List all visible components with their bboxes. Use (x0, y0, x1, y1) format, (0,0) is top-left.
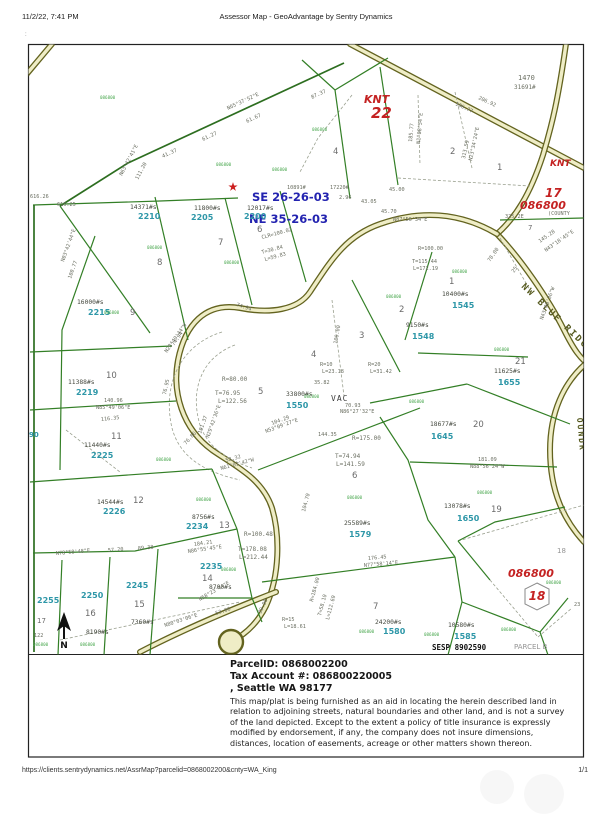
map-label: N03°42'44"E (60, 228, 77, 262)
map-label: N86°27'32"E (340, 409, 374, 415)
map-label: 086800 (508, 567, 554, 580)
map-label: 2210 (138, 212, 161, 221)
map-label: 43.05 (361, 199, 377, 205)
map-label: 2205 (191, 213, 214, 222)
map-label: 086800 (477, 490, 493, 495)
map-label: 25589#s (344, 520, 371, 527)
map-label: R=20 (368, 362, 381, 368)
map-label: 14 (202, 574, 213, 584)
street-label-partial: OUNDR (575, 417, 587, 452)
map-label: T=115.44 (412, 259, 437, 265)
map-label: 3 (359, 331, 364, 341)
map-label: 2200 (244, 212, 267, 221)
map-label: VAC (331, 394, 348, 403)
map-label: 086800 (359, 629, 375, 634)
map-label: 1650 (457, 514, 480, 523)
map-label: 122 (34, 633, 43, 639)
parcel-info-panel: ParcelID: 0868002200 Tax Account #: 0868… (230, 659, 572, 749)
map-label: 14544#s (97, 499, 124, 506)
map-label: 086800 (272, 167, 288, 172)
map-label: R=80.00 (222, 376, 248, 383)
map-label: 6 (257, 225, 262, 235)
map-label: 086800 (386, 294, 402, 299)
map-label: 90 (29, 431, 39, 439)
map-label: 1545 (452, 301, 475, 310)
footer-page-number: 1/1 (578, 767, 588, 774)
map-label: 41.37 (161, 148, 178, 160)
map-label: 17 (545, 186, 562, 200)
map-label: 13078#s (444, 503, 471, 510)
map-label: 18 (529, 589, 546, 603)
map-label: 181.09 (478, 457, 497, 463)
map-label: 086800 (104, 310, 120, 315)
map-label: N88°56'24"W (470, 464, 505, 470)
watermark-circle (524, 774, 564, 814)
map-label: 104.70 (301, 493, 312, 513)
map-label: 87.37 (310, 89, 327, 101)
map-label: 61.67 (245, 113, 262, 125)
map-label: 086800 (409, 399, 425, 404)
map-label: 45.70 (381, 209, 397, 215)
map-label: KNT (550, 159, 572, 169)
map-label: 2234 (186, 522, 209, 531)
map-label: 2 (399, 305, 404, 315)
map-label: CLR=100.02 (261, 227, 293, 241)
map-label: 12017#s (247, 205, 274, 212)
map-label: 18677#s (430, 421, 457, 428)
map-label: 6 (352, 471, 357, 481)
map-label: 1585 (454, 632, 477, 641)
map-label: 086800 (224, 260, 240, 265)
map-label: 45.00 (389, 187, 405, 193)
map-label: L=141.59 (336, 461, 365, 468)
map-label: R=15 (282, 617, 295, 623)
map-label: 1 (497, 163, 502, 173)
map-label: L=23.18 (322, 369, 344, 375)
map-label: 13 (219, 521, 230, 531)
map-label: 140.96 (104, 398, 123, 404)
map-label: 23 (574, 602, 580, 608)
map-label: 11440#s (84, 442, 111, 449)
map-label: 086800 (156, 457, 172, 462)
map-label: 57.20 (108, 547, 124, 554)
map-label: T=178.08 (238, 546, 267, 553)
map-label: 89.38 (138, 545, 154, 552)
watermark-circle (480, 770, 514, 804)
short-plat-label: SESP 8902590 (432, 643, 487, 652)
map-label: R=100.48 (244, 531, 273, 538)
map-label: 17 (37, 617, 46, 625)
map-label: (COUNTY (548, 211, 571, 217)
map-label: 7360#s (131, 619, 154, 626)
map-label: 206.92 (477, 95, 497, 108)
map-label: 086800 (312, 127, 328, 132)
map-label: 7 (373, 602, 378, 612)
map-label: 2225 (91, 451, 114, 460)
map-label: 78.00 (487, 247, 501, 263)
map-label: 21 (515, 357, 526, 367)
map-label: 11625#s (494, 368, 521, 375)
map-label: 5 (258, 387, 263, 397)
map-label: 11 (111, 432, 122, 442)
map-label: 2245 (126, 581, 149, 590)
map-label: 24200#s (375, 619, 402, 626)
map-label: 2219 (76, 388, 99, 397)
map-label: L=212.44 (239, 554, 268, 561)
map-label: 616.25 (57, 202, 76, 208)
map-label: 086800 (100, 95, 116, 100)
map-label: R=175.00 (352, 435, 381, 442)
map-label: 1580 (383, 627, 406, 636)
footer-url[interactable]: https://clients.sentrydynamics.net/AssrM… (22, 767, 277, 774)
map-label: 17220# (330, 185, 350, 191)
map-label: 16000#s (77, 299, 104, 306)
section-label-se: SE 26-26-03 (252, 190, 330, 204)
map-label: L=31.42 (370, 369, 392, 375)
map-label: R=10 (320, 362, 333, 368)
map-label: 086800 (424, 632, 440, 637)
map-label: 10891# (287, 185, 307, 191)
map-label: T=74.94 (335, 453, 361, 460)
map-label: 76.95 (162, 379, 171, 396)
map-label: 25 (511, 266, 519, 275)
map-label: 086800 (494, 347, 510, 352)
parcel-line-layer (30, 58, 584, 655)
map-label: 2226 (103, 507, 126, 516)
map-label: 2.96 (339, 195, 352, 201)
map-label: 9 (130, 308, 135, 318)
map-label: 19 (491, 505, 502, 515)
map-label: 10400#s (442, 291, 469, 298)
map-label: 1645 (431, 432, 454, 441)
map-label: 185.77 (408, 123, 416, 142)
map-label: 086800 (196, 497, 212, 502)
map-label: 100.00 (333, 325, 342, 345)
cul-de-sac (219, 630, 243, 654)
map-label: 10 (106, 371, 117, 381)
map-label: L=18.61 (284, 624, 306, 630)
map-label: 086800 (221, 567, 237, 572)
tax-account-line: Tax Account #: 086800220005 (230, 671, 572, 683)
map-label: 12 (133, 496, 144, 506)
map-label: 4 (311, 350, 316, 360)
map-label: 8190#s (86, 629, 109, 636)
map-label: 31691# (514, 84, 536, 91)
map-label: 2255 (37, 596, 60, 605)
site-address-line: , Seattle WA 98177 (230, 683, 572, 695)
map-label: 086800 (347, 495, 363, 500)
map-label: R=184.00 (309, 577, 321, 603)
map-label: 2250 (81, 591, 104, 600)
map-label: L=172.19 (413, 266, 438, 272)
map-label: 086800 (304, 394, 320, 399)
map-label: 1470 (518, 74, 535, 82)
map-label: 2235 (200, 562, 223, 571)
map-label: 61.27 (201, 131, 218, 143)
map-label: 111.20 (134, 162, 148, 181)
map-label: N1°08'54"E (416, 113, 425, 145)
map-label: 2 (450, 147, 455, 157)
map-label: 20 (473, 420, 484, 430)
north-label: N (60, 641, 68, 651)
map-label: 100.77 (67, 260, 79, 280)
map-label: 086800 (80, 642, 96, 647)
map-labels: ★SE 26-26-03NE 35-26-03KNT22KNT170868000… (29, 74, 595, 652)
disclaimer-text: This map/plat is being furnished as an a… (230, 697, 572, 749)
map-label: 1548 (412, 332, 435, 341)
map-label: 616.26 (30, 194, 49, 200)
map-label: 116.35 (101, 415, 120, 423)
map-label: N29°42'36"E (205, 404, 222, 438)
print-page: { "header": { "datetime": "11/2/22, 7:41… (0, 0, 612, 792)
map-label: 10580#s (448, 622, 475, 629)
map-label: 14371#s (130, 204, 157, 211)
map-label: N78°58'48"E (56, 548, 91, 557)
map-label: 8756#s (192, 514, 215, 521)
map-label: 16 (85, 609, 96, 619)
map-label: L=122.56 (218, 398, 247, 405)
map-label: 11388#s (68, 379, 95, 386)
map-content: ★SE 26-26-03NE 35-26-03KNT22KNT170868000… (20, 44, 595, 655)
map-label: 325.2E (505, 214, 524, 220)
map-label: N87°56'34"E (393, 217, 427, 223)
map-label: 086800 (546, 580, 562, 585)
map-label: 35.82 (314, 380, 330, 386)
map-label: 1 (449, 277, 454, 287)
map-label: 1655 (498, 378, 521, 387)
map-label: 086800 (33, 642, 49, 647)
subject-parcel-star-icon: ★ (228, 176, 238, 196)
map-label: R=100.00 (418, 246, 443, 252)
map-label: 11800#s (194, 205, 221, 212)
map-label: T=76.95 (215, 390, 241, 397)
map-label: 1579 (349, 530, 372, 539)
map-label: 18 (557, 547, 566, 555)
map-label: 086800 (216, 162, 232, 167)
map-label: 086800 (501, 627, 517, 632)
map-label: 22 (371, 104, 392, 122)
map-label: 15 (134, 600, 145, 610)
map-label: 8 (157, 258, 162, 268)
map-label: N85°49'06"E (96, 405, 130, 411)
map-label: 9150#s (406, 322, 429, 329)
map-label: PARCEL B (514, 643, 548, 651)
map-label: 086800 (452, 269, 468, 274)
map-label: 7 (218, 238, 223, 248)
parcel-id-line: ParcelID: 0868002200 (230, 659, 572, 671)
map-label: 1550 (286, 401, 309, 410)
map-label: 144.35 (318, 432, 337, 438)
map-label: 086800 (147, 245, 163, 250)
map-label: 4 (333, 147, 338, 157)
map-label: N86°55'45"E (187, 544, 222, 555)
map-label: 7 (528, 224, 532, 232)
